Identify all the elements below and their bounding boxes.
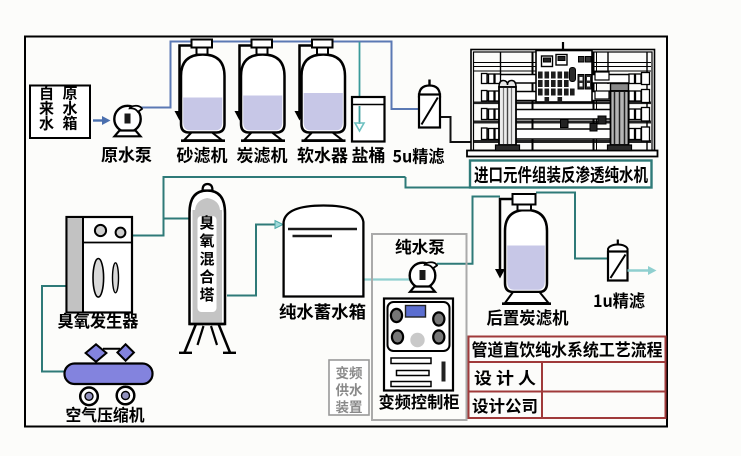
svg-text:纯水蓄水箱: 纯水蓄水箱 (279, 298, 366, 323)
svg-text:空气压缩机: 空气压缩机 (66, 402, 145, 426)
svg-text:水: 水 (39, 113, 54, 134)
svg-text:管道直饮纯水系统工艺流程: 管道直饮纯水系统工艺流程 (472, 336, 663, 361)
svg-text:臭氧发生器: 臭氧发生器 (58, 308, 139, 332)
svg-text:纯水泵: 纯水泵 (395, 234, 446, 258)
svg-text:进口元件组装反渗透纯水机: 进口元件组装反渗透纯水机 (474, 162, 648, 188)
svg-text:后置炭滤机: 后置炭滤机 (487, 304, 569, 329)
svg-text:塔: 塔 (199, 284, 214, 305)
svg-text:设 计 人: 设 计 人 (474, 365, 537, 389)
svg-text:设计公司: 设计公司 (472, 393, 538, 417)
svg-text:软水器: 软水器 (297, 142, 348, 167)
svg-text:盐桶: 盐桶 (352, 142, 386, 167)
svg-text:变频控制柜: 变频控制柜 (379, 389, 460, 413)
svg-text:1u精滤: 1u精滤 (593, 287, 645, 312)
svg-text:装置: 装置 (336, 396, 363, 416)
svg-text:箱: 箱 (62, 113, 77, 134)
svg-text:5u精滤: 5u精滤 (393, 143, 445, 168)
svg-text:原水泵: 原水泵 (101, 141, 152, 166)
svg-text:砂滤机: 砂滤机 (177, 142, 228, 167)
svg-text:炭滤机: 炭滤机 (237, 142, 288, 167)
